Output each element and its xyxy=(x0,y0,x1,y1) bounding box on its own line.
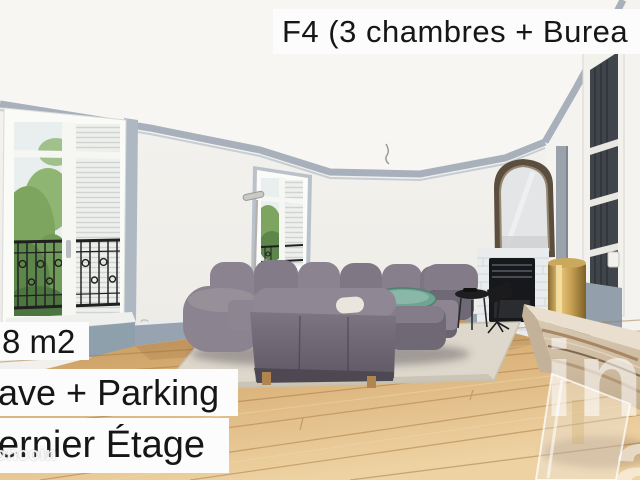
window-mullion xyxy=(62,122,76,317)
caption-parking: ave + Parking xyxy=(0,369,238,416)
window-handle xyxy=(66,240,71,258)
light-switch xyxy=(608,252,619,267)
white-pillow xyxy=(335,296,364,314)
ottoman xyxy=(388,306,446,350)
watermark-small: oncoin xyxy=(0,444,57,465)
sofa-front-section xyxy=(250,288,396,388)
watermark-corner: a xyxy=(612,402,640,480)
sofa-foot xyxy=(262,372,271,385)
sofa-foot xyxy=(367,376,376,388)
caption-area: 8 m2 xyxy=(0,322,89,360)
wall-mirror xyxy=(494,159,555,259)
doorway-bookshelf xyxy=(583,26,624,316)
listing-photo-card: F4 (3 chambres + Burea 8 m2 ave + Parkin… xyxy=(0,0,640,480)
caption-rooms: F4 (3 chambres + Burea xyxy=(273,9,640,54)
